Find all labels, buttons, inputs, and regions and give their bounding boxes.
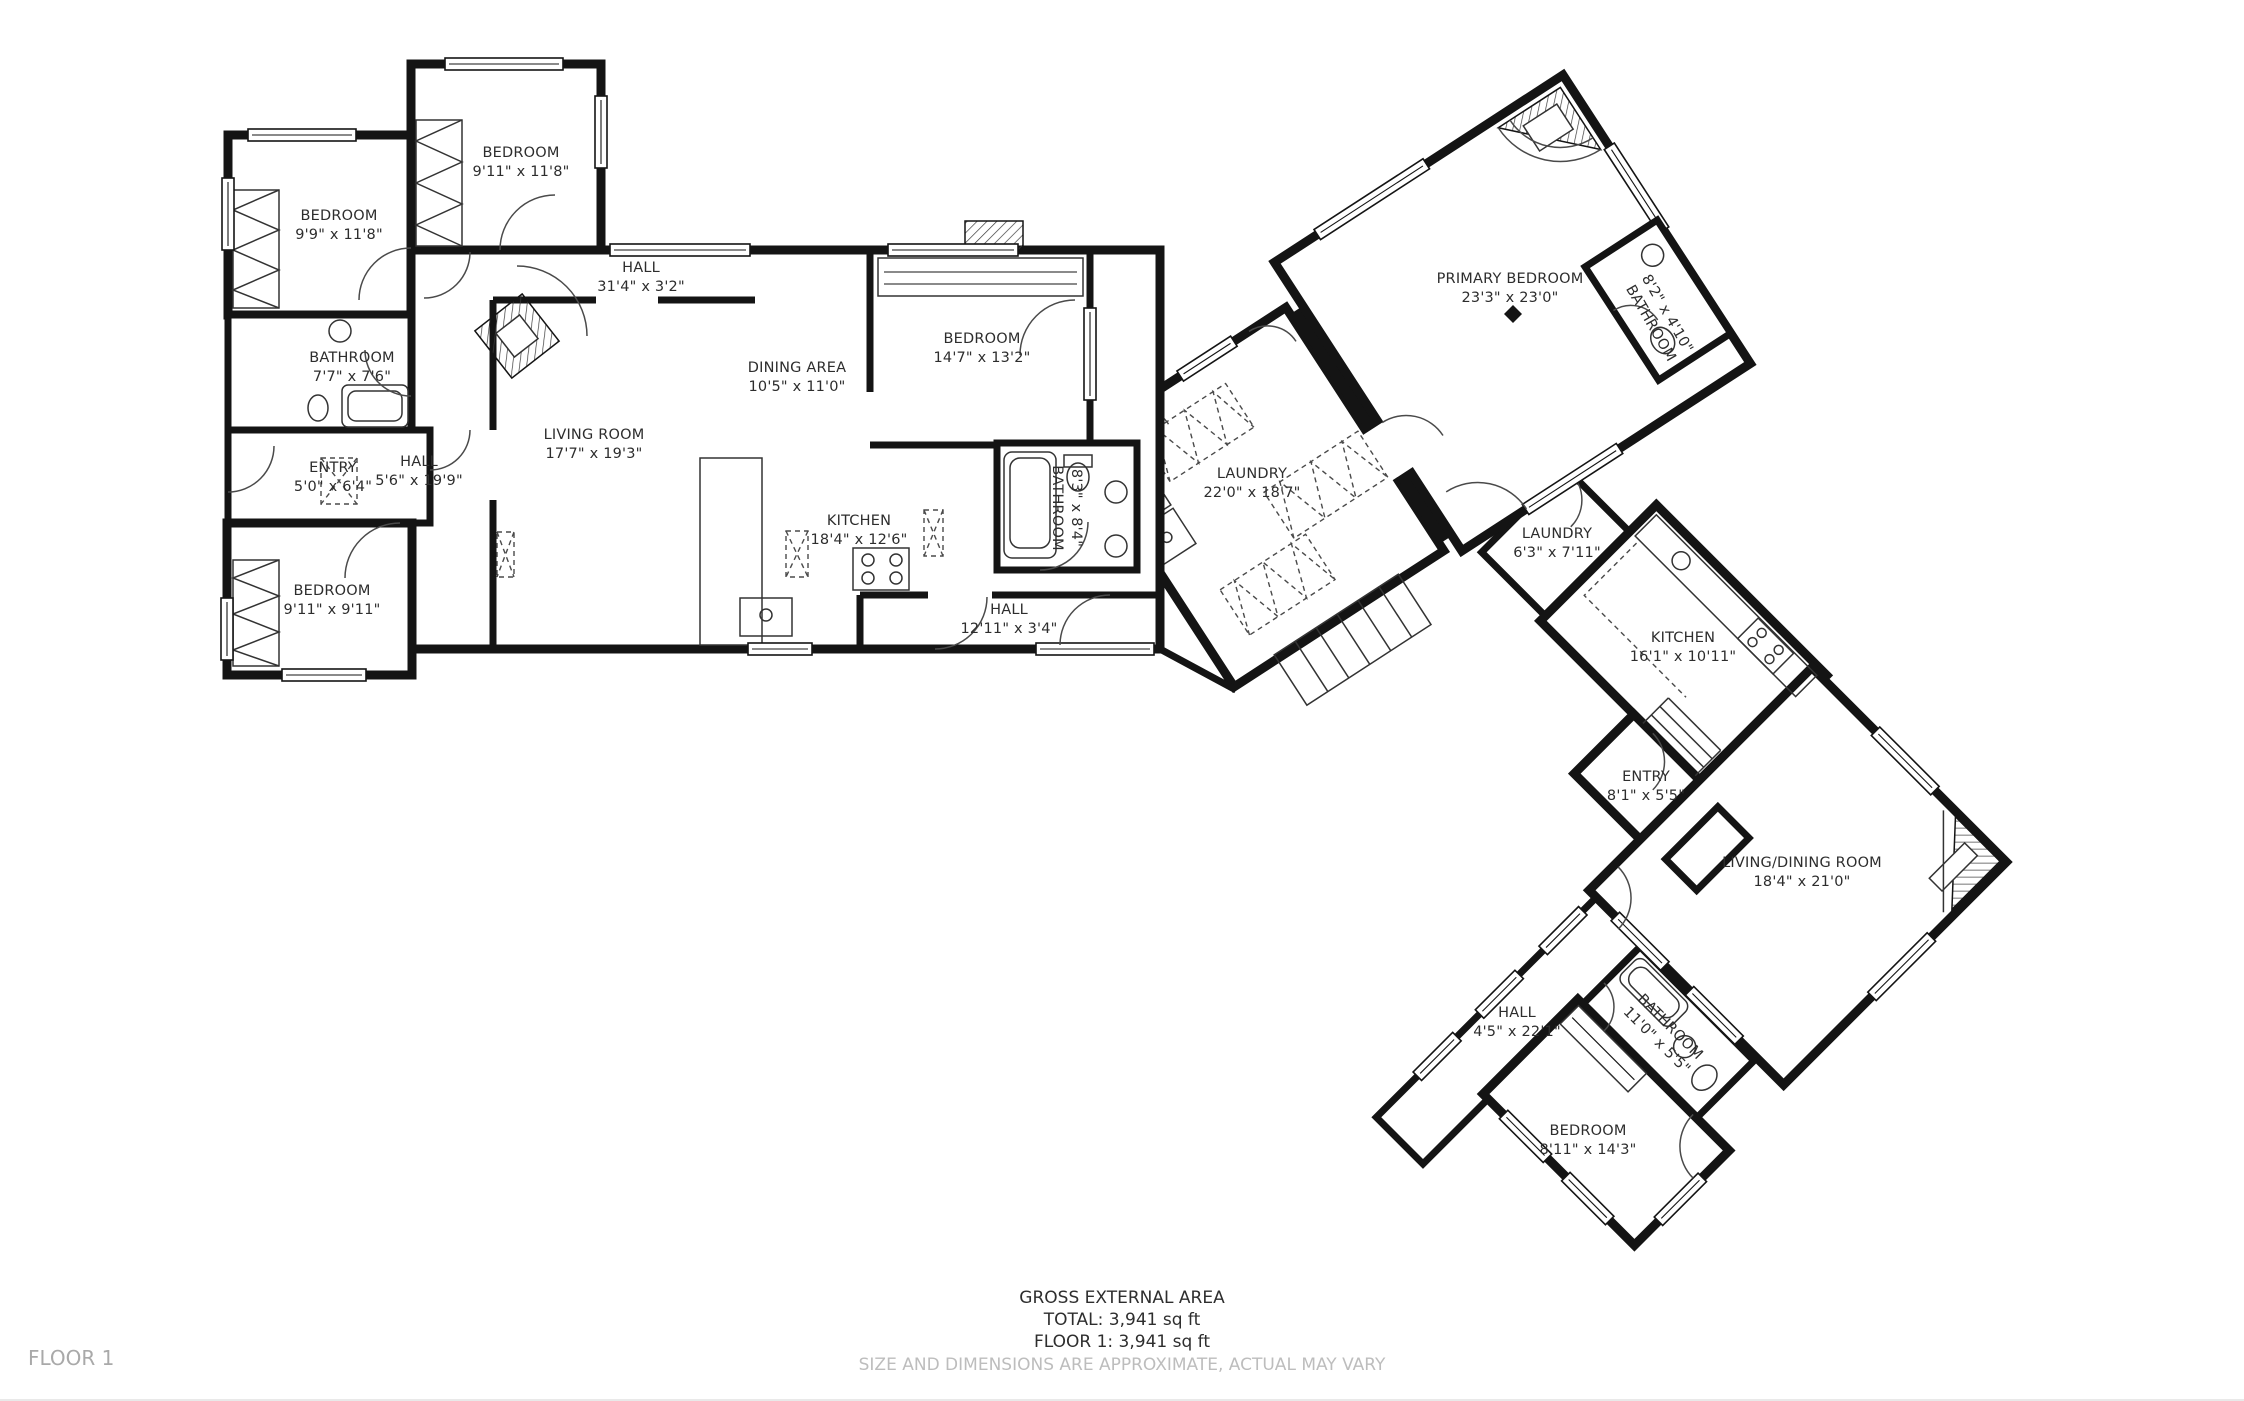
svg-text:10'5" x 11'0": 10'5" x 11'0" — [748, 379, 845, 395]
svg-text:17'7" x 19'3": 17'7" x 19'3" — [545, 446, 642, 462]
svg-text:7'7" x 7'6": 7'7" x 7'6" — [313, 369, 391, 385]
svg-text:ENTRY: ENTRY — [1622, 769, 1670, 785]
svg-text:BATHROOM: BATHROOM — [309, 350, 395, 366]
svg-text:22'0" x 18'7": 22'0" x 18'7" — [1203, 485, 1300, 501]
total-area-value: TOTAL: 3,941 sq ft — [0, 1310, 2244, 1330]
svg-text:4'5" x 22'1": 4'5" x 22'1" — [1473, 1024, 1561, 1040]
floor-plan-drawing: BEDROOM9'11" x 11'8" BEDROOM9'9" x 11'8"… — [0, 0, 2244, 1401]
svg-text:HALL: HALL — [1498, 1005, 1536, 1021]
floor-plan-page: BEDROOM9'11" x 11'8" BEDROOM9'9" x 11'8"… — [0, 0, 2244, 1401]
svg-text:8'11" x 14'3": 8'11" x 14'3" — [1539, 1142, 1636, 1158]
svg-text:PRIMARY BEDROOM: PRIMARY BEDROOM — [1437, 271, 1584, 287]
svg-text:KITCHEN: KITCHEN — [827, 513, 891, 529]
svg-text:9'9" x 11'8": 9'9" x 11'8" — [295, 227, 383, 243]
svg-text:16'1" x 10'11": 16'1" x 10'11" — [1630, 649, 1737, 665]
svg-text:31'4" x 3'2": 31'4" x 3'2" — [597, 279, 685, 295]
svg-text:8'3" x 8'4": 8'3" x 8'4" — [1068, 469, 1084, 547]
svg-text:14'7" x 13'2": 14'7" x 13'2" — [933, 350, 1030, 366]
svg-text:LAUNDRY: LAUNDRY — [1217, 466, 1287, 482]
svg-text:12'11" x 3'4": 12'11" x 3'4" — [960, 621, 1057, 637]
svg-text:BEDROOM: BEDROOM — [1549, 1123, 1626, 1139]
svg-text:HALL: HALL — [400, 454, 438, 470]
svg-text:DINING AREA: DINING AREA — [748, 360, 847, 376]
svg-text:HALL: HALL — [990, 602, 1028, 618]
svg-text:HALL: HALL — [622, 260, 660, 276]
svg-text:LIVING/DINING ROOM: LIVING/DINING ROOM — [1722, 855, 1882, 871]
svg-text:LAUNDRY: LAUNDRY — [1522, 526, 1592, 542]
svg-text:5'0" x 6'4": 5'0" x 6'4" — [294, 479, 372, 495]
svg-text:BEDROOM: BEDROOM — [293, 583, 370, 599]
svg-text:8'1" x 5'5": 8'1" x 5'5" — [1607, 788, 1685, 804]
size-disclaimer: SIZE AND DIMENSIONS ARE APPROXIMATE, ACT… — [0, 1355, 2244, 1375]
svg-text:ENTRY: ENTRY — [309, 460, 357, 476]
svg-text:9'11" x 11'8": 9'11" x 11'8" — [472, 164, 569, 180]
svg-text:LIVING ROOM: LIVING ROOM — [544, 427, 645, 443]
svg-text:BEDROOM: BEDROOM — [482, 145, 559, 161]
svg-text:BATHROOM: BATHROOM — [1049, 465, 1065, 551]
svg-text:18'4" x 12'6": 18'4" x 12'6" — [810, 532, 907, 548]
svg-text:23'3" x 23'0": 23'3" x 23'0" — [1461, 290, 1558, 306]
gross-area-heading: GROSS EXTERNAL AREA — [0, 1288, 2244, 1308]
bathroom-center-walls — [997, 443, 1137, 570]
svg-text:18'4" x 21'0": 18'4" x 21'0" — [1753, 874, 1850, 890]
svg-text:BEDROOM: BEDROOM — [300, 208, 377, 224]
svg-text:KITCHEN: KITCHEN — [1651, 630, 1715, 646]
svg-text:5'6" x 19'9": 5'6" x 19'9" — [375, 473, 463, 489]
svg-text:6'3" x 7'11": 6'3" x 7'11" — [1513, 545, 1601, 561]
svg-text:BEDROOM: BEDROOM — [943, 331, 1020, 347]
floor1-area-value: FLOOR 1: 3,941 sq ft — [0, 1332, 2244, 1352]
svg-text:9'11" x 9'11": 9'11" x 9'11" — [283, 602, 380, 618]
floor-label: FLOOR 1 — [28, 1346, 114, 1370]
